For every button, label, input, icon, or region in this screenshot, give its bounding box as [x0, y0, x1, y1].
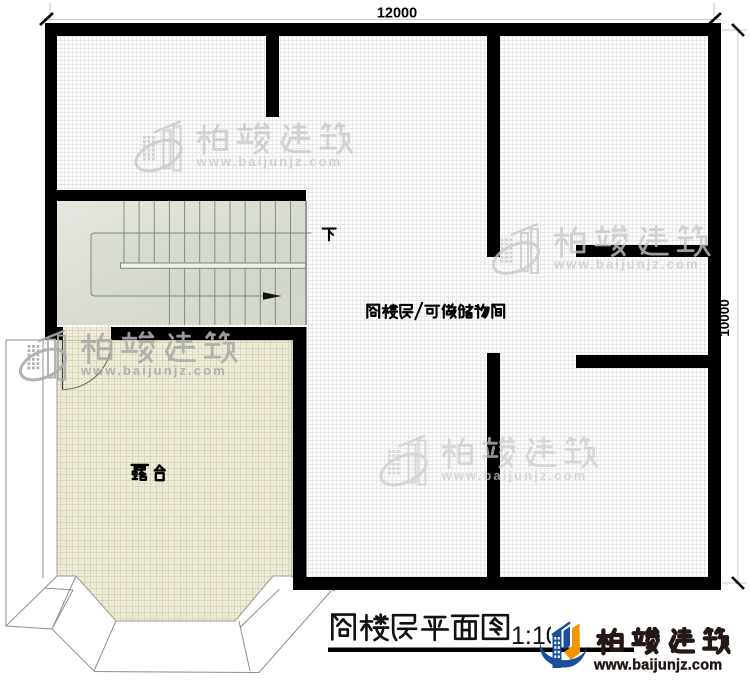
svg-text:12000: 12000: [377, 6, 417, 22]
svg-text:10000: 10000: [717, 299, 732, 337]
svg-text:www.baijunjz.com: www.baijunjz.com: [593, 658, 722, 674]
